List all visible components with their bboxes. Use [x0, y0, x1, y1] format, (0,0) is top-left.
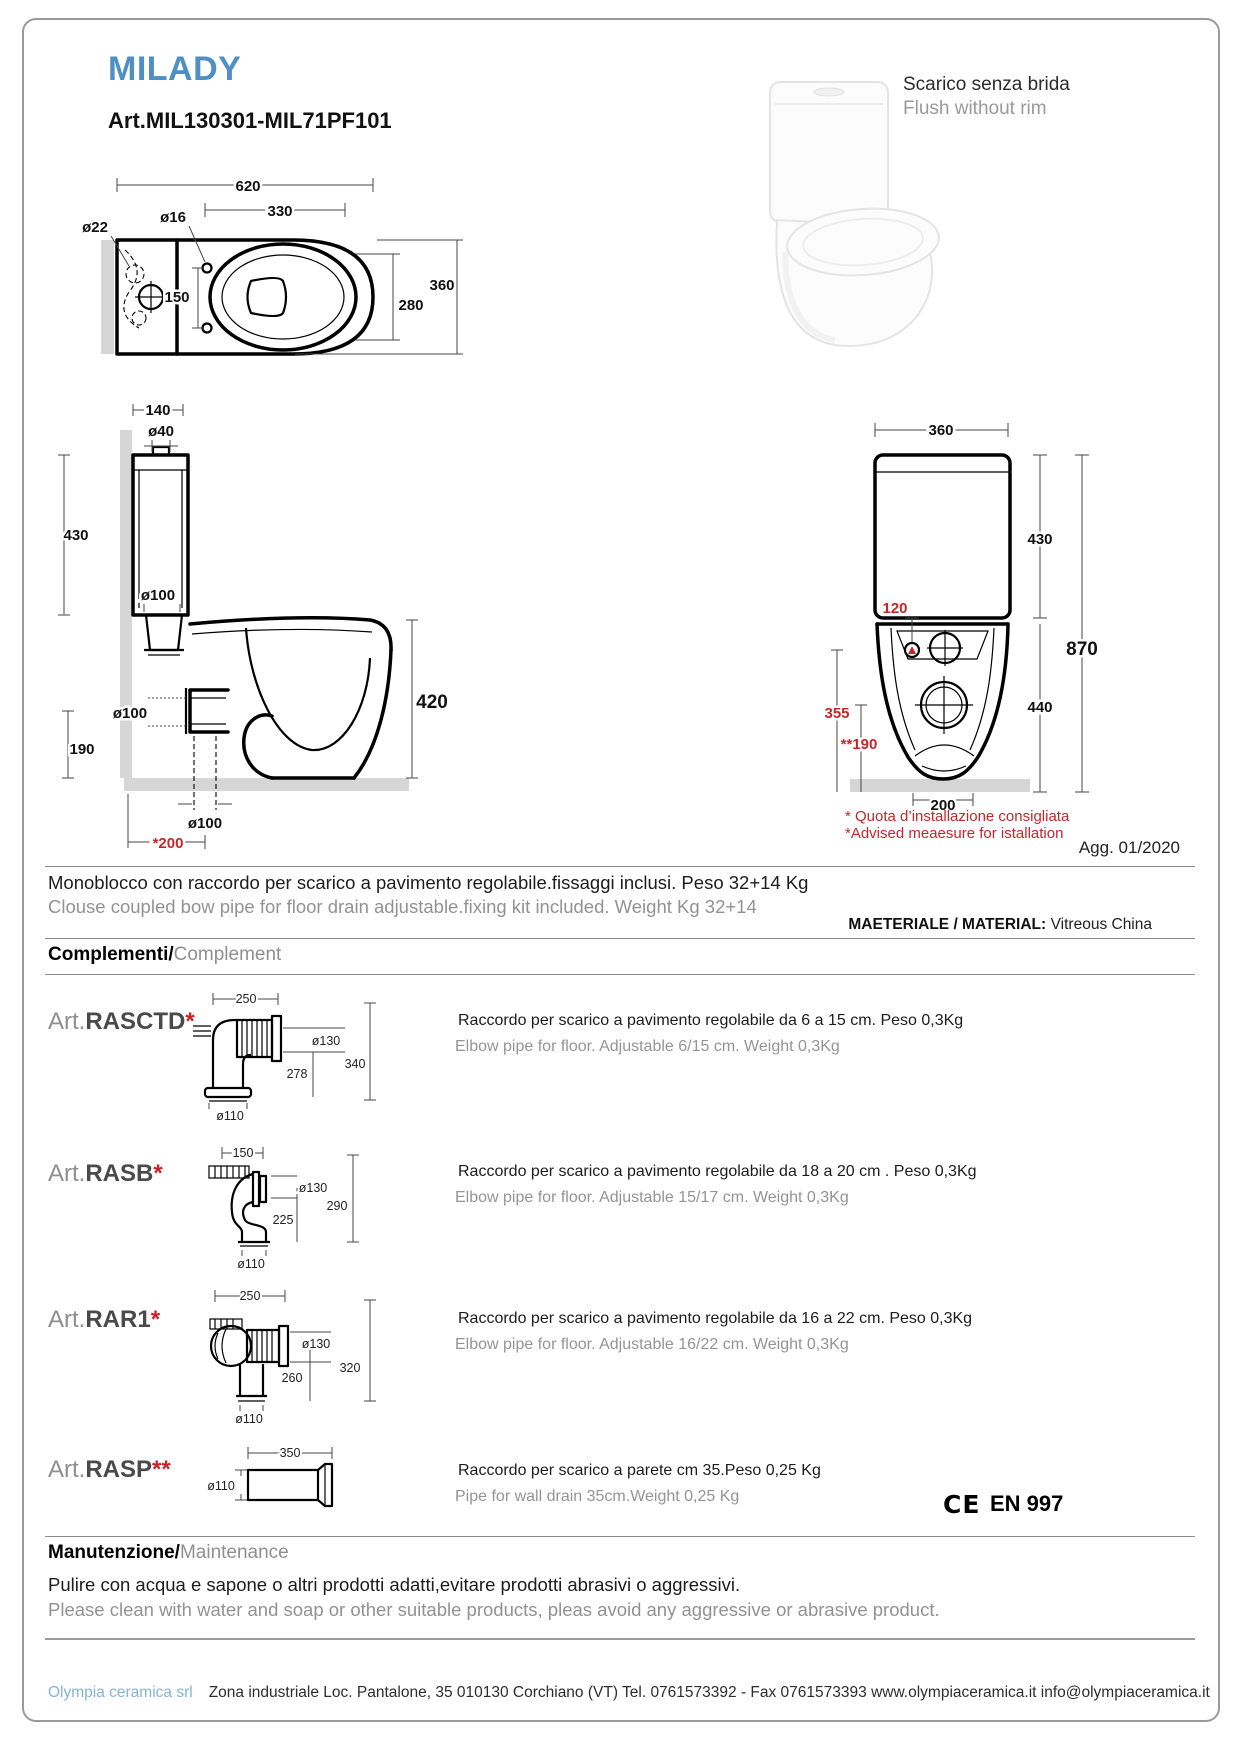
dim-label: 250	[236, 992, 257, 1006]
footer: Olympia ceramica srlZona industriale Loc…	[48, 1684, 1188, 1702]
rasctd-desc-en: Elbow pipe for floor. Adjustable 6/15 cm…	[455, 1038, 840, 1056]
complements-heading-en: Complement	[174, 944, 282, 965]
rasb-drawing: 150 ø130 290 225 ø110	[185, 1132, 395, 1277]
dim-width-total: 620	[235, 178, 260, 195]
rar1-desc-it: Raccordo per scarico a pavimento regolab…	[458, 1310, 972, 1328]
dim-label: ø110	[207, 1479, 235, 1493]
art-code: RASB	[85, 1160, 153, 1187]
datasheet-page: MILADY Art.MIL130301-MIL71PF101 Scarico …	[0, 0, 1241, 1755]
dim-label: 340	[345, 1057, 366, 1071]
rasb-desc-en: Elbow pipe for floor. Adjustable 15/17 c…	[455, 1189, 849, 1207]
dim-label: 150	[233, 1146, 254, 1160]
complement-label-rar1: Art.RAR1*	[48, 1306, 160, 1334]
art-stars: **	[152, 1456, 171, 1483]
dim-seat-height: 420	[416, 692, 448, 713]
rasctd-drawing: 250 ø130 340 278 ø110	[185, 988, 395, 1128]
dim-label: ø130	[312, 1034, 341, 1048]
dim-total-depth: 360	[429, 277, 454, 294]
rar1-line-art	[210, 1290, 376, 1411]
revision-date: Agg. 01/2020	[1020, 838, 1180, 858]
rasp-drawing: 350 ø110	[185, 1443, 415, 1543]
complement-label-rasctd: Art.RASCTD*	[48, 1008, 195, 1036]
dim-hole: ø16	[160, 209, 186, 226]
dim-label: ø110	[216, 1109, 244, 1123]
dim-label: ø110	[237, 1257, 265, 1271]
art-prefix: Art.	[48, 1456, 85, 1483]
dim-label: ø110	[235, 1412, 263, 1426]
rasp-desc-en: Pipe for wall drain 35cm.Weight 0,25 Kg	[455, 1488, 739, 1506]
art-prefix: Art.	[48, 1008, 85, 1035]
rar1-drawing: 250 ø130 320 260 ø110	[185, 1278, 405, 1433]
dim-label: 350	[280, 1446, 301, 1460]
dim-hole-spacing: 150	[164, 289, 189, 306]
side-view-drawing: 140 ø40 430 ø100 ø100 190 420 ø100 *200	[40, 358, 470, 873]
art-code: RASP	[85, 1456, 152, 1483]
art-stars: *	[153, 1160, 162, 1187]
dim-outlet-height: 190	[69, 741, 94, 758]
art-prefix: Art.	[48, 1160, 85, 1187]
dim-label: 225	[273, 1213, 294, 1227]
dim-label: 260	[282, 1371, 303, 1385]
rasb-desc-it: Raccordo per scarico a pavimento regolab…	[458, 1163, 977, 1181]
footer-divider	[45, 1638, 1195, 1640]
dim-tank-height: 430	[63, 527, 88, 544]
footer-company: Olympia ceramica srl	[48, 1684, 193, 1701]
dim-seat-width: 330	[267, 203, 292, 220]
flush-note-en: Flush without rim	[903, 98, 1047, 120]
rar1-desc-en: Elbow pipe for floor. Adjustable 16/22 c…	[455, 1336, 849, 1354]
ce-mark-icon: CE	[943, 1490, 980, 1519]
divider	[45, 1536, 1195, 1537]
description-it: Monoblocco con raccordo per scarico a pa…	[48, 872, 808, 894]
maintenance-heading-en: Maintenance	[180, 1542, 289, 1563]
flush-note-it: Scarico senza brida	[903, 74, 1070, 96]
art-stars: *	[151, 1306, 160, 1333]
maintenance-heading: Manutenzione/Maintenance	[48, 1542, 289, 1564]
ce-standard: EN 997	[990, 1491, 1063, 1517]
article-number: Art.MIL130301-MIL71PF101	[108, 108, 392, 134]
divider	[45, 974, 1195, 975]
install-note-it: * Quota d’installazione consigliata	[845, 808, 1085, 825]
side-view-line-art	[58, 404, 418, 849]
complements-heading-it: Complementi/	[48, 944, 174, 965]
dim-outlet-rear: ø100	[113, 705, 147, 722]
material-value: Vitreous China	[1051, 916, 1152, 933]
dim-label: ø130	[299, 1181, 328, 1195]
material-label: MAETERIALE / MATERIAL:	[848, 916, 1046, 933]
dim-label: 278	[287, 1067, 308, 1081]
rasctd-line-art	[193, 993, 376, 1109]
art-code: RASCTD	[85, 1008, 185, 1035]
material-line: MAETERIALE / MATERIAL: Vitreous China	[830, 916, 1152, 934]
dim-label: 290	[327, 1199, 348, 1213]
complements-heading: Complementi/Complement	[48, 944, 281, 966]
dim-fix-height2: **190	[841, 736, 878, 753]
page-title: MILADY	[108, 50, 241, 89]
maintenance-text-it: Pulire con acqua e sapone o altri prodot…	[48, 1574, 740, 1596]
dim-outlet-top: ø100	[141, 587, 175, 604]
divider	[45, 866, 1195, 867]
dim-inlet: ø40	[148, 423, 174, 440]
dim-tank-width: 140	[145, 402, 170, 419]
maintenance-text-en: Please clean with water and soap or othe…	[48, 1599, 940, 1621]
dim-total-height: 870	[1066, 639, 1098, 660]
dim-drain-distance: *200	[153, 835, 184, 852]
complement-label-rasp: Art.RASP**	[48, 1456, 171, 1484]
top-view-drawing: 620 330 ø16 ø22 150 280 360	[55, 150, 485, 365]
dim-bowl-height: 440	[1027, 699, 1052, 716]
install-note: * Quota d’installazione consigliata *Adv…	[845, 808, 1085, 842]
rear-view-drawing: 360 120 355 **190 200 430 440 870	[745, 372, 1105, 822]
footer-address: Zona industriale Loc. Pantalone, 35 0101…	[209, 1684, 1210, 1701]
dim-inner-depth: 280	[398, 297, 423, 314]
dim-label: 250	[240, 1289, 261, 1303]
rasp-desc-it: Raccordo per scarico a parete cm 35.Peso…	[458, 1462, 821, 1480]
dim-drain: ø100	[188, 815, 222, 832]
complement-label-rasb: Art.RASB*	[48, 1160, 163, 1188]
dim-hole-left: ø22	[82, 219, 108, 236]
dim-label: ø130	[302, 1337, 331, 1351]
art-prefix: Art.	[48, 1306, 85, 1333]
dim-rear-tank-height: 430	[1027, 531, 1052, 548]
divider	[45, 938, 1195, 939]
description-en: Clouse coupled bow pipe for floor drain …	[48, 896, 757, 918]
dim-hole-offset: 120	[882, 600, 907, 617]
art-code: RAR1	[85, 1306, 150, 1333]
dim-fix-height: 355	[824, 705, 849, 722]
maintenance-heading-it: Manutenzione/	[48, 1542, 180, 1563]
dim-rear-width: 360	[928, 422, 953, 439]
toilet-photo-art	[770, 82, 941, 346]
rasctd-desc-it: Raccordo per scarico a pavimento regolab…	[458, 1012, 963, 1030]
dim-label: 320	[340, 1361, 361, 1375]
